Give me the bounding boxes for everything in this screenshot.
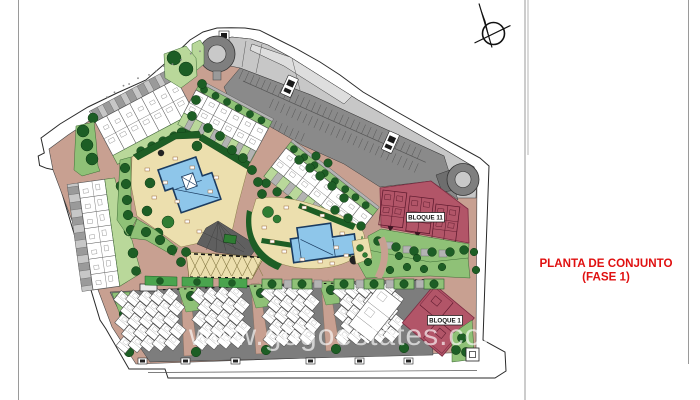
svg-text:(FASE 1): (FASE 1) (582, 271, 630, 284)
svg-text:BLOQUE 11: BLOQUE 11 (408, 215, 443, 222)
svg-text:www.gogoestates.com: www.gogoestates.com (188, 319, 508, 352)
svg-text:PLANTA DE CONJUNTO: PLANTA DE CONJUNTO (539, 257, 672, 270)
